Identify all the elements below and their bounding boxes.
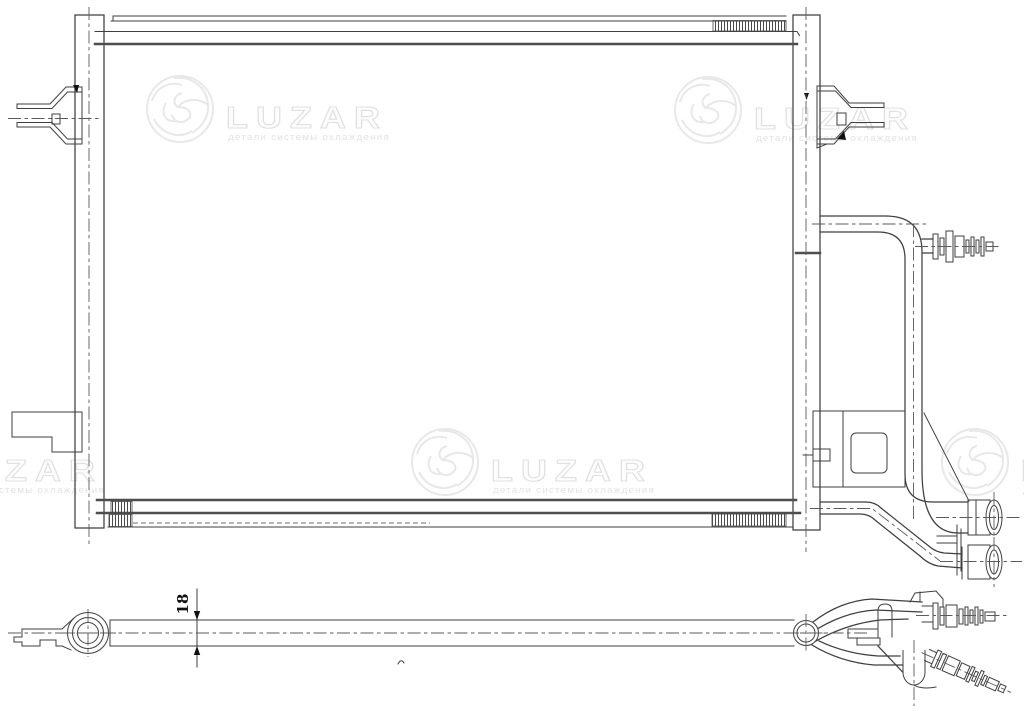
- fin-hatch-bottom-right: [712, 514, 786, 526]
- core-top-edge: [95, 16, 800, 36]
- side-pipes-lower: [812, 641, 912, 682]
- technical-drawing-canvas: LUZAR детали системы охлаждения LUZAR де…: [0, 0, 1024, 711]
- fin-hatch-bottom-left-lower: [109, 515, 132, 527]
- gusset-line: [924, 413, 969, 501]
- condenser-drawing-svg: LUZAR детали системы охлаждения LUZAR де…: [0, 0, 1024, 711]
- watermark-brand-text: LUZAR: [0, 453, 103, 488]
- dimension-18: 18: [174, 589, 200, 667]
- watermark-brand-text: LUZAR: [226, 100, 388, 135]
- watermark: LUZAR детали системы охлаждения: [147, 76, 390, 143]
- dragon-icon: [942, 429, 1008, 495]
- surface-mark: [398, 661, 404, 664]
- mounting-bracket-top-left: [17, 87, 82, 144]
- fitting-horizontal: [916, 603, 1010, 629]
- bracket-left-hole: [52, 114, 60, 124]
- watermark-subtitle-text: детали системы охлаждения: [493, 485, 655, 496]
- watermark: LUZAR детали системы охлаждения: [675, 77, 918, 144]
- watermark-brand-text: LUZAR: [491, 453, 653, 488]
- left-mount-arm: [14, 618, 74, 650]
- watermark-subtitle-text: детали системы охлаждения: [756, 133, 918, 144]
- side-view-centerlines: [8, 609, 914, 706]
- watermark-subtitle-text: детали системы охлаждения: [228, 132, 390, 143]
- connector-plates: [848, 629, 880, 645]
- dragon-icon: [412, 429, 478, 495]
- mounting-bracket-bottom-left: [12, 412, 82, 452]
- inlet-pipe-bottom-right: [820, 502, 962, 568]
- fitting-stub: [922, 606, 933, 622]
- side-view: 18: [8, 589, 1015, 706]
- dimension-label: 18: [174, 594, 192, 615]
- watermark: LUZAR детали системы охлаждения: [942, 429, 1024, 496]
- dragon-icon: [147, 76, 213, 142]
- watermark: LUZAR детали системы охлаждения: [412, 429, 655, 496]
- watermark-brand-text: LUZAR: [754, 101, 916, 136]
- core-bottom-tubes: [97, 500, 800, 513]
- fin-hatch-bottom-left-upper: [111, 502, 132, 513]
- fitting-elements: [933, 603, 995, 629]
- front-view: [8, 7, 1022, 587]
- fin-hatch-top-right: [713, 21, 786, 32]
- dragon-icon: [675, 77, 741, 143]
- fitting-angled: [918, 644, 1015, 700]
